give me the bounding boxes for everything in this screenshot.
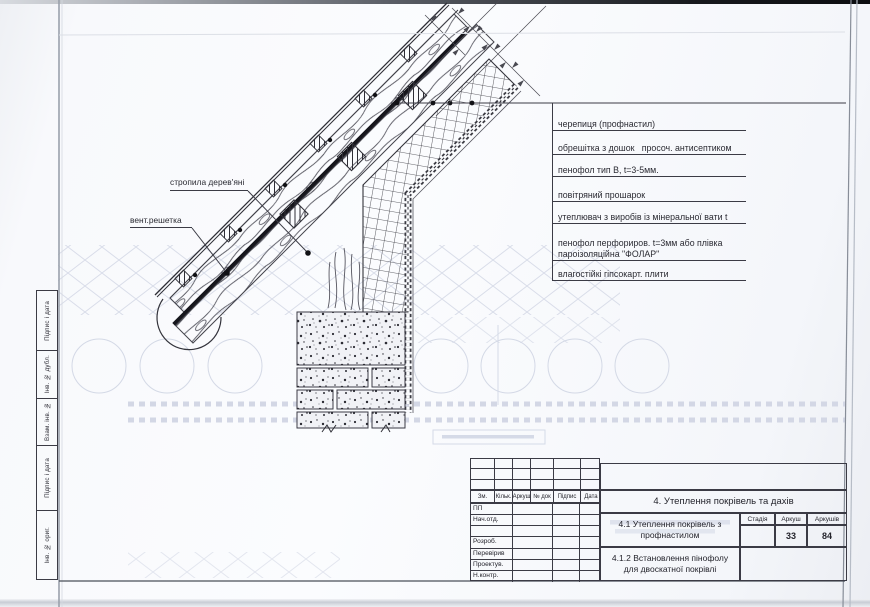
row-label — [471, 526, 513, 536]
title-block-empty-box — [600, 463, 847, 490]
sheets-total-cell: 84 — [807, 525, 847, 547]
stage-col-label: Стадія — [748, 516, 768, 523]
callout-insulation: утеплювач з виробів із мінеральної вати … — [553, 202, 746, 224]
row-cell — [553, 504, 580, 514]
subtitle2-line2: для двоскатної покрівлі — [624, 564, 717, 575]
signature-row: ПП — [471, 504, 599, 515]
grid-cell — [581, 469, 601, 479]
subtitle2-line1: 4.1.2 Встановлення пінофолу — [612, 553, 728, 564]
grid-cell — [471, 459, 495, 469]
subtitle1-line1: 4.1 Утеплення покрівель з — [619, 519, 722, 530]
grid-cell — [495, 459, 513, 469]
margin-cell: Підпис і дата — [37, 291, 57, 351]
signature-row — [471, 526, 599, 537]
callout-lath: обрешітка з дошок просоч. антисептиком — [553, 131, 746, 155]
callout-label: черепиця (профнастил) — [558, 119, 744, 130]
subtitle1-cell: 4.1 Утеплення покрівель з профнастилом — [600, 513, 740, 547]
grid-cell — [531, 480, 554, 489]
sheet-col-label: Аркуш — [781, 516, 800, 523]
row-cell — [553, 571, 580, 582]
stage-col-header: Стадія — [740, 513, 775, 525]
row-label: ПП — [471, 504, 513, 514]
row-label: Розроб. — [471, 537, 513, 547]
signature-rows: ПП Нач.отд. Розроб. Перевірив Проектув. … — [470, 503, 600, 581]
callout-label: пароізоляційна "ФОЛАР" — [558, 249, 744, 260]
label-vent-grille: вент.решетка — [130, 215, 192, 228]
margin-strip-table: Підпис і дата Інв. № дубл. Взам. інв. № … — [36, 290, 58, 580]
row-cell — [513, 549, 554, 559]
title-block-header-row: Зм. Кільк. Аркуш № док Підпис Дата — [470, 490, 600, 503]
margin-cell: Взам. інв. № — [37, 399, 57, 446]
sheet-number: 33 — [786, 531, 796, 541]
signature-row: Нач.отд. — [471, 515, 599, 526]
grid-cell — [531, 469, 554, 479]
callout-gypsum-board: влагостійкі гіпсокарт. плити — [553, 261, 746, 281]
margin-cell-label: Взам. інв. № — [44, 402, 51, 441]
grid-cell — [581, 480, 601, 489]
row-label: Нач.отд. — [471, 515, 513, 525]
row-cell — [580, 515, 599, 525]
row-cell — [553, 549, 580, 559]
sheets-col-header: Аркушів — [807, 513, 847, 525]
row-cell — [580, 571, 599, 582]
callout-air-gap: повітряний прошарок — [553, 177, 746, 202]
callout-label: пенофол перфориров. t=3мм або плівка — [558, 238, 744, 249]
col-header: № док — [531, 491, 554, 502]
grid-cell — [513, 469, 531, 479]
col-header: Зм. — [471, 491, 495, 502]
row-cell — [553, 537, 580, 547]
scanned-drawing-sheet: черепиця (профнастил) обрешітка з дошок … — [0, 0, 870, 607]
row-cell — [580, 560, 599, 570]
margin-cell: Інв. № дубл. — [37, 351, 57, 399]
row-cell — [553, 560, 580, 570]
grid-cell — [581, 459, 601, 469]
grid-cell — [471, 480, 495, 489]
section-title: 4. Утеплення покрівель та дахів — [653, 496, 793, 507]
section-title-cell: 4. Утеплення покрівель та дахів — [600, 490, 847, 513]
grid-cell — [554, 459, 581, 469]
callout-label: утеплювач з виробів із мінеральної вати … — [558, 212, 744, 223]
sheets-col-label: Аркушів — [815, 516, 839, 523]
title-block-upper-grid — [470, 458, 600, 490]
label-rafters: стропила дерев'яні — [170, 177, 248, 191]
row-label: Н.контр. — [471, 571, 513, 582]
callout-penofol: пенофол тип В, t=3-5мм. — [553, 155, 746, 177]
grid-cell — [495, 469, 513, 479]
organization-cell — [740, 547, 847, 581]
row-cell — [580, 549, 599, 559]
row-cell — [513, 515, 554, 525]
row-cell — [513, 560, 554, 570]
row-label: Перевірив — [471, 549, 513, 559]
grid-cell — [531, 459, 554, 469]
grid-cell — [471, 469, 495, 479]
col-header: Кільк. — [495, 491, 513, 502]
margin-cell-label: Інв. № дубл. — [44, 355, 51, 393]
row-cell — [553, 526, 580, 536]
sheet-number-cell: 33 — [775, 525, 807, 547]
grid-cell — [495, 480, 513, 489]
margin-cell-label: Інв. № ориг. — [44, 527, 51, 564]
stage-value-cell — [740, 525, 775, 547]
row-label: Проектув. — [471, 560, 513, 570]
sheet-col-header: Аркуш — [775, 513, 807, 525]
grid-cell — [554, 469, 581, 479]
callout-label: обрешітка з дошок просоч. антисептиком — [558, 143, 744, 154]
signature-row: Розроб. — [471, 537, 599, 548]
margin-cell: Підпис і дата — [37, 446, 57, 511]
margin-cell-label: Підпис і дата — [44, 458, 51, 498]
row-cell — [580, 526, 599, 536]
layer-callout-list: черепиця (профнастил) обрешітка з дошок … — [552, 103, 746, 281]
row-cell — [513, 526, 554, 536]
callout-label: пенофол тип В, t=3-5мм. — [558, 165, 744, 176]
callout-label: влагостійкі гіпсокарт. плити — [558, 269, 744, 280]
row-cell — [513, 537, 554, 547]
subtitle2-cell: 4.1.2 Встановлення пінофолу для двоскатн… — [600, 547, 740, 581]
signature-row: Н.контр. — [471, 571, 599, 582]
col-header: Підпис — [554, 491, 581, 502]
margin-cell-label: Підпис і дата — [44, 301, 51, 341]
row-cell — [513, 571, 554, 582]
callout-penofol-perforated: пенофол перфориров. t=3мм або плівка пар… — [553, 224, 746, 261]
row-cell — [580, 504, 599, 514]
callout-roof-sheet: черепиця (профнастил) — [553, 103, 746, 131]
row-cell — [580, 537, 599, 547]
title-block: Зм. Кільк. Аркуш № док Підпис Дата 4. Ут… — [470, 458, 847, 581]
grid-cell — [554, 480, 581, 489]
grid-cell — [513, 459, 531, 469]
signature-row: Проектув. — [471, 560, 599, 571]
row-cell — [553, 515, 580, 525]
grid-cell — [513, 480, 531, 489]
row-cell — [513, 504, 554, 514]
sheets-total: 84 — [822, 531, 832, 541]
col-header: Аркуш — [513, 491, 531, 502]
masonry-wall — [297, 312, 405, 432]
signature-row: Перевірив — [471, 549, 599, 560]
margin-cell: Інв. № ориг. — [37, 511, 57, 579]
subtitle1-line2: профнастилом — [641, 530, 700, 541]
callout-label: повітряний прошарок — [558, 190, 744, 201]
col-header: Дата — [581, 491, 601, 502]
